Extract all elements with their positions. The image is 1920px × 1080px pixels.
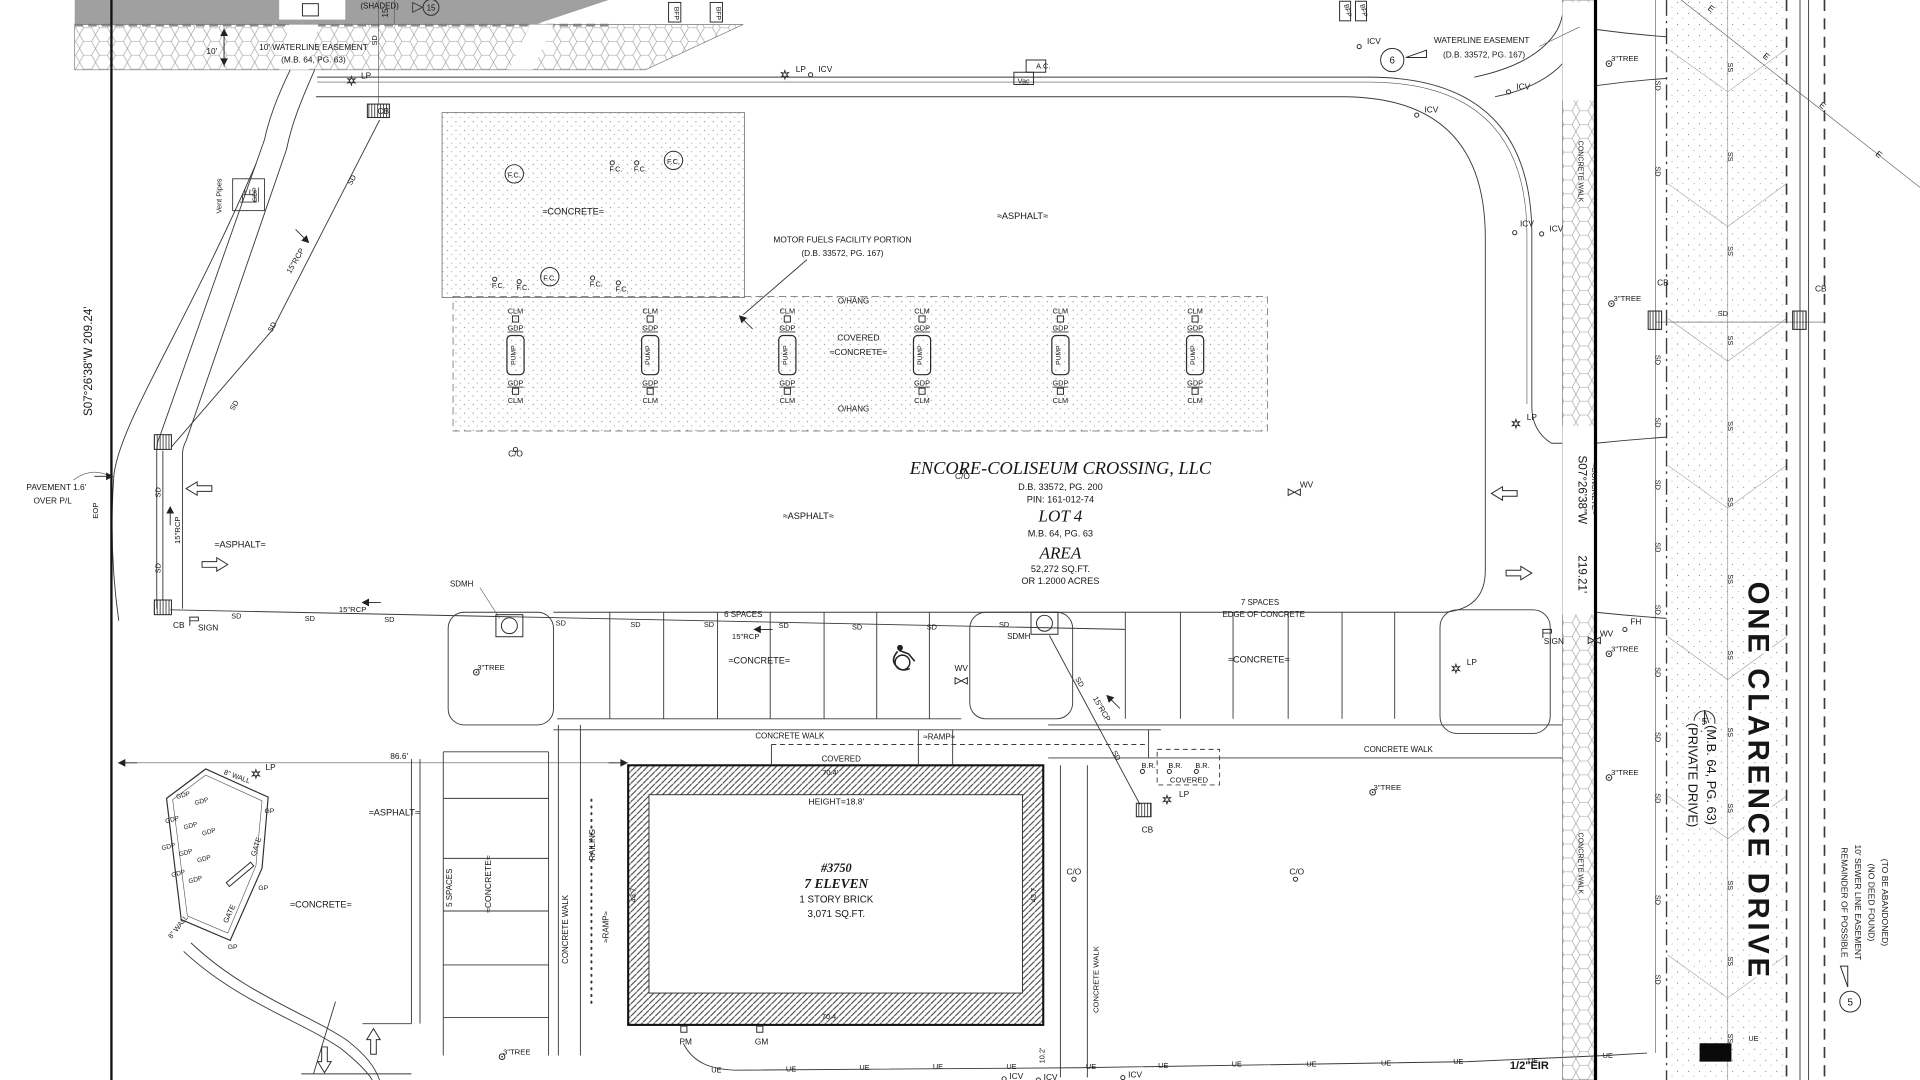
east-bearing-distance: 219.21' xyxy=(1575,555,1588,593)
plan-label: 86.6' xyxy=(390,751,408,761)
plan-label: 6 SPACES xyxy=(724,610,762,619)
building-area: 3,071 SQ.FT. xyxy=(808,909,866,920)
plan-label: GDP xyxy=(642,324,658,333)
plan-label: SS xyxy=(1726,956,1735,966)
plan-label: ≈CONCRETE≈ xyxy=(728,656,790,666)
plan-label: ≈ASPHALT≈ xyxy=(997,211,1048,221)
plan-label: UE xyxy=(933,1062,943,1071)
street-type: (PRIVATE DRIVE) xyxy=(1686,723,1701,827)
plan-label: CB xyxy=(377,106,389,116)
plan-label: ICV xyxy=(1520,219,1534,229)
plan-label: SS xyxy=(1726,727,1735,737)
plan-label: WV xyxy=(955,663,969,673)
plan-label: CLM xyxy=(1053,306,1068,315)
plan-label: 15"RCP xyxy=(339,605,367,614)
plan-label: CLM xyxy=(1053,396,1068,405)
plan-label: 3"TREE xyxy=(1374,783,1402,792)
plan-label: SD xyxy=(1654,974,1663,984)
plan-label: CLM xyxy=(914,306,929,315)
plan-label: ≈RAMP≈ xyxy=(602,910,611,942)
plan-label: COVERED xyxy=(837,332,879,342)
plan-label: EOP xyxy=(91,502,100,518)
waterline-easement-top-line2: (M.B. 64, PG. 63) xyxy=(281,54,346,64)
plan-label: UE xyxy=(859,1063,869,1072)
plan-label: CB xyxy=(1142,825,1154,835)
west-bearing-label: S07°26'38"W 209.24' xyxy=(82,306,95,416)
plan-label: ≈CONCRETE≈ xyxy=(483,855,493,913)
road-crossing-marker xyxy=(1700,1043,1732,1061)
catch-basin-icon xyxy=(154,600,171,615)
plan-label: 15"RCP xyxy=(173,516,182,544)
plan-label: UE xyxy=(1306,1060,1316,1069)
plan-label: SS xyxy=(1726,880,1735,890)
plan-label: ≈ASPHALT≈ xyxy=(783,511,834,521)
plan-label: SD xyxy=(852,622,862,631)
area-square-feet: 52,272 SQ.FT. xyxy=(1031,564,1090,574)
plan-label: PAVEMENT 1.6' xyxy=(26,482,86,492)
plan-label: F.C. xyxy=(590,280,603,289)
plan-label: SS xyxy=(1726,62,1735,72)
plan-label: 3"TREE xyxy=(1611,768,1639,777)
concrete-slab-north xyxy=(442,113,744,298)
plan-label: SD xyxy=(1654,166,1663,176)
plan-label: F.C. xyxy=(616,284,629,293)
building-name: 7 ELEVEN xyxy=(804,876,869,891)
plan-label: GDP xyxy=(779,324,795,333)
plan-label: ICV xyxy=(1009,1071,1023,1080)
plan-label: 3"TREE xyxy=(1611,644,1639,653)
plan-label: F.C. xyxy=(543,273,556,282)
plan-label: UE xyxy=(711,1066,721,1075)
plan-label: EDGE OF CONCRETE xyxy=(1222,610,1304,619)
plan-label: SD xyxy=(231,611,241,620)
plan-label: CONCRETE WALK xyxy=(561,894,570,964)
plan-label: ≈CONCRETE≈ xyxy=(542,206,604,216)
plan-label: SD xyxy=(1654,417,1663,427)
plan-label: C/O xyxy=(508,449,523,459)
plan-label: 6 xyxy=(1390,56,1396,67)
plan-label: CB xyxy=(1815,283,1827,293)
plan-label: SS xyxy=(1726,650,1735,660)
plan-label: SD xyxy=(1654,667,1663,677)
plan-label: UE xyxy=(1453,1057,1463,1066)
sewer-remainder-line1: REMAINDER OF POSSIBLE xyxy=(1840,847,1850,958)
plan-label: WV xyxy=(1600,629,1614,639)
plan-label: CONCRETE WALK xyxy=(1576,832,1584,894)
deed-reference: D.B. 33572, PG. 200 xyxy=(1018,482,1103,492)
plan-label: GDP xyxy=(1187,324,1203,333)
plan-label: ICV xyxy=(1424,105,1438,115)
plan-label: ≈CONCRETE≈ xyxy=(1590,463,1599,515)
plan-label: GM xyxy=(755,1036,768,1046)
plan-label: OVER P/L xyxy=(33,495,72,505)
plan-label: 43.7 xyxy=(1029,888,1038,902)
plan-label: PM xyxy=(679,1036,692,1046)
lot-number: LOT 4 xyxy=(1037,507,1082,526)
plan-label: GP xyxy=(265,808,275,815)
plan-label: SS xyxy=(1726,421,1735,431)
plan-label: GDP xyxy=(1052,379,1068,388)
plan-label: SD xyxy=(1654,355,1663,365)
plan-label: 70.4 xyxy=(822,1012,836,1021)
plan-label: 3"TREE xyxy=(503,1047,531,1056)
plan-label: GP xyxy=(228,944,238,951)
plan-label: SD xyxy=(999,620,1009,629)
sewer-remainder-line2: 10' SEWER LINE EASEMENT xyxy=(1853,845,1863,962)
plan-label: ≈CONCRETE≈ xyxy=(290,899,352,909)
motor-fuels-note-line2: (D.B. 33572, PG. 167) xyxy=(801,248,883,258)
plan-label: 10.2' xyxy=(1037,1047,1046,1063)
plan-label: FH xyxy=(1630,616,1641,626)
plan-label: ≈RAMP≈ xyxy=(923,733,955,742)
plan-label: PUMP xyxy=(511,345,518,365)
plan-label: CB xyxy=(1657,277,1669,287)
plan-label: B.R. xyxy=(1168,761,1182,770)
street-name: ONE CLARENCE DRIVE xyxy=(1742,582,1775,981)
plan-label: CLM xyxy=(914,396,929,405)
plan-label: BFP xyxy=(714,7,721,21)
plan-label: SD xyxy=(630,620,640,629)
plan-label: SDMH xyxy=(450,580,474,589)
plan-label: 70.4' xyxy=(822,768,838,777)
plan-label: SD xyxy=(927,622,937,631)
plan-label: ICV xyxy=(1516,81,1530,91)
plan-label: COVERED xyxy=(1170,775,1209,784)
plan-label: 43.7 xyxy=(629,888,638,902)
plan-label: CLM xyxy=(508,306,523,315)
site-plan-page: (SHADED)1515'SD10'LPCBBFPBFPVent PipesGD… xyxy=(0,0,1920,1080)
plan-label: PUMP xyxy=(645,345,652,365)
plan-label: LP xyxy=(1527,412,1538,422)
building-stories: 1 STORY BRICK xyxy=(799,894,873,905)
pin-reference: PIN: 161-012-74 xyxy=(1027,495,1094,505)
plan-label: LP xyxy=(266,762,277,772)
sewer-remainder-line4: (TO BE ABANDONED) xyxy=(1880,859,1890,947)
plan-label: ICV xyxy=(818,64,832,74)
plan-label: CONCRETE WALK xyxy=(1364,745,1434,754)
plan-label: F.C. xyxy=(609,164,622,173)
plan-label: GDP xyxy=(252,187,259,202)
plan-label: GDP xyxy=(508,324,524,333)
plan-label: CLM xyxy=(642,306,657,315)
plan-label: CLM xyxy=(780,396,795,405)
plan-label: SIGN xyxy=(198,623,218,633)
plan-label: CB xyxy=(173,620,185,630)
plan-label: GDP xyxy=(1187,379,1203,388)
plan-label: ≈ASPHALT≈ xyxy=(214,539,265,549)
plan-label: SD xyxy=(370,35,379,45)
plan-label: Vent Pipes xyxy=(215,178,224,213)
plan-label: UE xyxy=(1086,1062,1096,1071)
plan-label: F.C. xyxy=(492,281,505,290)
plan-label: CLM xyxy=(1187,396,1202,405)
walk-band-gap-north xyxy=(1562,2,1595,100)
plan-label: ≈CONCRETE≈ xyxy=(1228,654,1290,664)
plan-label: SD xyxy=(704,620,714,629)
plan-label: GDP xyxy=(779,379,795,388)
plan-label: UE xyxy=(1603,1051,1613,1060)
plan-label: CLM xyxy=(780,306,795,315)
plan-label: O/HANG xyxy=(838,297,869,306)
plan-label: 7 SPACES xyxy=(1241,598,1279,607)
plan-label: RAILING xyxy=(588,829,597,861)
plan-label: C/O xyxy=(1066,866,1081,876)
area-acres: OR 1.2000 ACRES xyxy=(1021,576,1099,586)
plan-label: SS xyxy=(1726,246,1735,256)
plan-label: F.C. xyxy=(508,171,521,180)
plan-label: SD xyxy=(1654,81,1663,91)
plan-label: 15' xyxy=(381,7,390,18)
plan-label: SD xyxy=(305,614,315,623)
plan-label: ≈ASPHALT≈ xyxy=(369,808,420,818)
plan-label: PUMP xyxy=(1190,345,1197,365)
plan-label: 3"TREE xyxy=(1614,294,1642,303)
plan-label: 1/2"EIR xyxy=(1510,1060,1549,1072)
plan-label: LP xyxy=(1179,789,1190,799)
shaded-area-notch xyxy=(279,0,345,20)
building-number: #3750 xyxy=(820,861,852,875)
plan-label: 5 SPACES xyxy=(445,869,454,907)
sewer-remainder-line3: (NO DEED FOUND) xyxy=(1867,864,1877,942)
plan-label: SDMH xyxy=(1007,632,1031,641)
plan-label: UE xyxy=(786,1064,796,1073)
plan-label: 10' xyxy=(206,46,217,56)
plan-label: SS xyxy=(1726,1033,1735,1043)
plan-label: GDP xyxy=(642,379,658,388)
plan-label: UE xyxy=(1232,1060,1242,1069)
plan-label: SIGN xyxy=(1544,636,1564,646)
plan-label: SS xyxy=(1726,336,1735,346)
plan-label: SD xyxy=(1654,542,1663,552)
plan-label: SS xyxy=(1726,152,1735,162)
waterline-easement-right-line2: (D.B. 33572, PG. 167) xyxy=(1443,50,1525,60)
map-reference: M.B. 64, PG. 63 xyxy=(1028,528,1093,538)
plan-label: UE xyxy=(1381,1058,1391,1067)
east-bearing-label: S07°26'38"W xyxy=(1575,456,1588,525)
plan-label: 15 xyxy=(427,3,436,12)
plan-label: 3"TREE xyxy=(477,663,505,672)
plan-label: B.R. xyxy=(1195,761,1209,770)
plan-label: O/HANG xyxy=(838,404,869,413)
plan-label: GDP xyxy=(914,324,930,333)
plan-label: CONCRETE WALK xyxy=(1091,945,1100,1013)
plan-label: 15"RCP xyxy=(732,632,760,641)
plan-label: 3"TREE xyxy=(1611,54,1639,63)
plan-label: ICV xyxy=(1128,1070,1142,1080)
plan-label: UE xyxy=(1748,1034,1758,1043)
plan-label: SD xyxy=(1654,895,1663,905)
plan-label: C/O xyxy=(1289,866,1304,876)
plan-label: WV xyxy=(1300,479,1314,489)
area-heading: AREA xyxy=(1038,543,1081,562)
plan-label: F.C. xyxy=(634,164,647,173)
plan-label: SD xyxy=(779,621,789,630)
plan-label: B.R. xyxy=(1141,761,1155,770)
plan-label: SD xyxy=(1718,309,1728,318)
plan-label: SD xyxy=(556,619,566,628)
plan-label: 5 xyxy=(1847,997,1853,1008)
plan-label: SS xyxy=(1726,803,1735,813)
plan-label: SS xyxy=(1726,497,1735,507)
plan-label: ICV xyxy=(1044,1072,1058,1080)
plan-label: PUMP xyxy=(782,345,789,365)
catch-basin-icon xyxy=(1793,311,1806,329)
plan-label: GDP xyxy=(508,379,524,388)
plan-label: CLM xyxy=(1187,306,1202,315)
plan-label: SS xyxy=(1726,574,1735,584)
catch-basin-icon xyxy=(154,435,171,450)
waterline-easement-right-line1: WATERLINE EASEMENT xyxy=(1434,35,1530,45)
plan-label: GDP xyxy=(914,379,930,388)
plan-label: LP xyxy=(361,70,372,80)
plan-label: CONCRETE WALK xyxy=(1576,141,1584,203)
plan-label: LP xyxy=(1467,657,1478,667)
plan-label: LP xyxy=(796,64,807,74)
plan-label: SD xyxy=(1654,793,1663,803)
waterline-easement-band xyxy=(75,24,744,69)
plan-label: SD xyxy=(1654,732,1663,742)
street-plat: (M.B. 64, PG. 63) xyxy=(1704,725,1719,825)
plan-label: PUMP xyxy=(917,345,924,365)
plan-label: UE xyxy=(1006,1062,1016,1071)
building-height: HEIGHT=18.8' xyxy=(808,796,864,806)
plan-label: SD xyxy=(384,615,394,624)
waterline-easement-top-line1: 10' WATERLINE EASEMENT xyxy=(259,42,368,52)
plan-label: SD xyxy=(153,563,162,573)
plan-label: ≈CONCRETE≈ xyxy=(830,347,888,357)
plan-label: A.C. xyxy=(1036,62,1050,71)
plan-label: GDP xyxy=(1052,324,1068,333)
owner-name: ENCORE-COLISEUM CROSSING, LLC xyxy=(909,458,1212,478)
plan-label: PUMP xyxy=(1055,345,1062,365)
plan-label: SD xyxy=(1654,605,1663,615)
plan-label: Vac xyxy=(1018,76,1030,85)
catch-basin-icon xyxy=(1648,311,1661,329)
plan-label: UE xyxy=(1158,1061,1168,1070)
plan-label: CLM xyxy=(508,396,523,405)
plan-label: COVERED xyxy=(822,755,862,764)
plan-label: ICV xyxy=(1549,223,1563,233)
plan-label: BFP xyxy=(673,7,680,21)
plan-label: CONCRETE WALK xyxy=(755,731,825,740)
plan-label: SD xyxy=(153,487,162,497)
catch-basin-icon xyxy=(1136,803,1151,816)
site-plan-drawing: (SHADED)1515'SD10'LPCBBFPBFPVent PipesGD… xyxy=(0,0,1920,1080)
plan-label: SD xyxy=(1654,480,1663,490)
plan-label: F.C. xyxy=(516,283,529,292)
plan-label: ICV xyxy=(1367,36,1381,46)
plan-label: GP xyxy=(258,885,268,892)
plan-label: (SHADED) xyxy=(360,2,399,11)
plan-label: CLM xyxy=(642,396,657,405)
plan-label: F.C. xyxy=(667,157,680,166)
motor-fuels-note-line1: MOTOR FUELS FACILITY PORTION xyxy=(773,234,911,244)
